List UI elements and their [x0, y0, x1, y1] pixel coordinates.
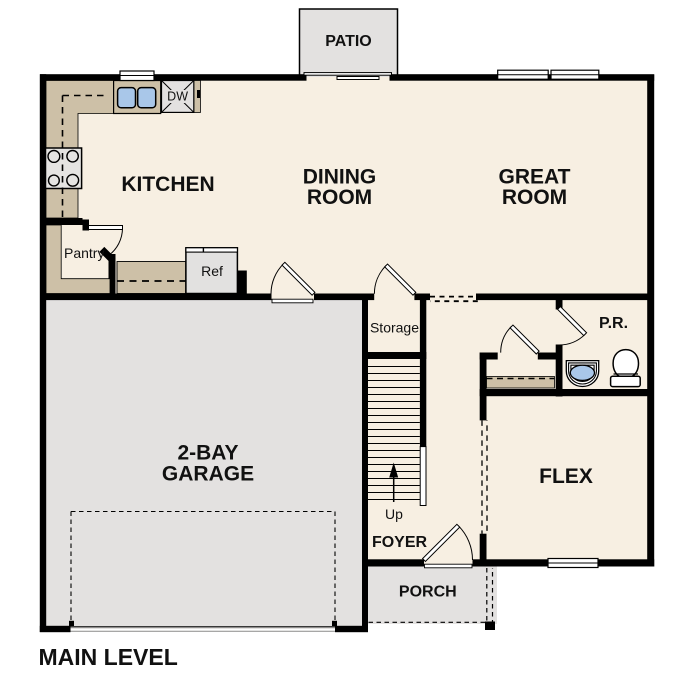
svg-text:FOYER: FOYER	[372, 534, 428, 551]
svg-text:PATIO: PATIO	[325, 33, 372, 50]
svg-text:Up: Up	[385, 506, 403, 522]
svg-text:Pantry: Pantry	[64, 245, 104, 261]
svg-text:ROOM: ROOM	[307, 186, 372, 209]
svg-text:DW: DW	[167, 90, 188, 104]
svg-text:KITCHEN: KITCHEN	[121, 173, 214, 196]
svg-text:FLEX: FLEX	[539, 465, 593, 488]
svg-text:Storage: Storage	[370, 320, 419, 336]
svg-text:2-BAY: 2-BAY	[177, 442, 238, 465]
svg-text:GARAGE: GARAGE	[162, 463, 254, 486]
svg-text:MAIN LEVEL: MAIN LEVEL	[39, 644, 178, 670]
svg-text:PORCH: PORCH	[399, 584, 457, 601]
svg-text:P.R.: P.R.	[599, 315, 628, 332]
svg-text:ROOM: ROOM	[502, 186, 567, 209]
svg-text:Ref: Ref	[201, 263, 223, 279]
